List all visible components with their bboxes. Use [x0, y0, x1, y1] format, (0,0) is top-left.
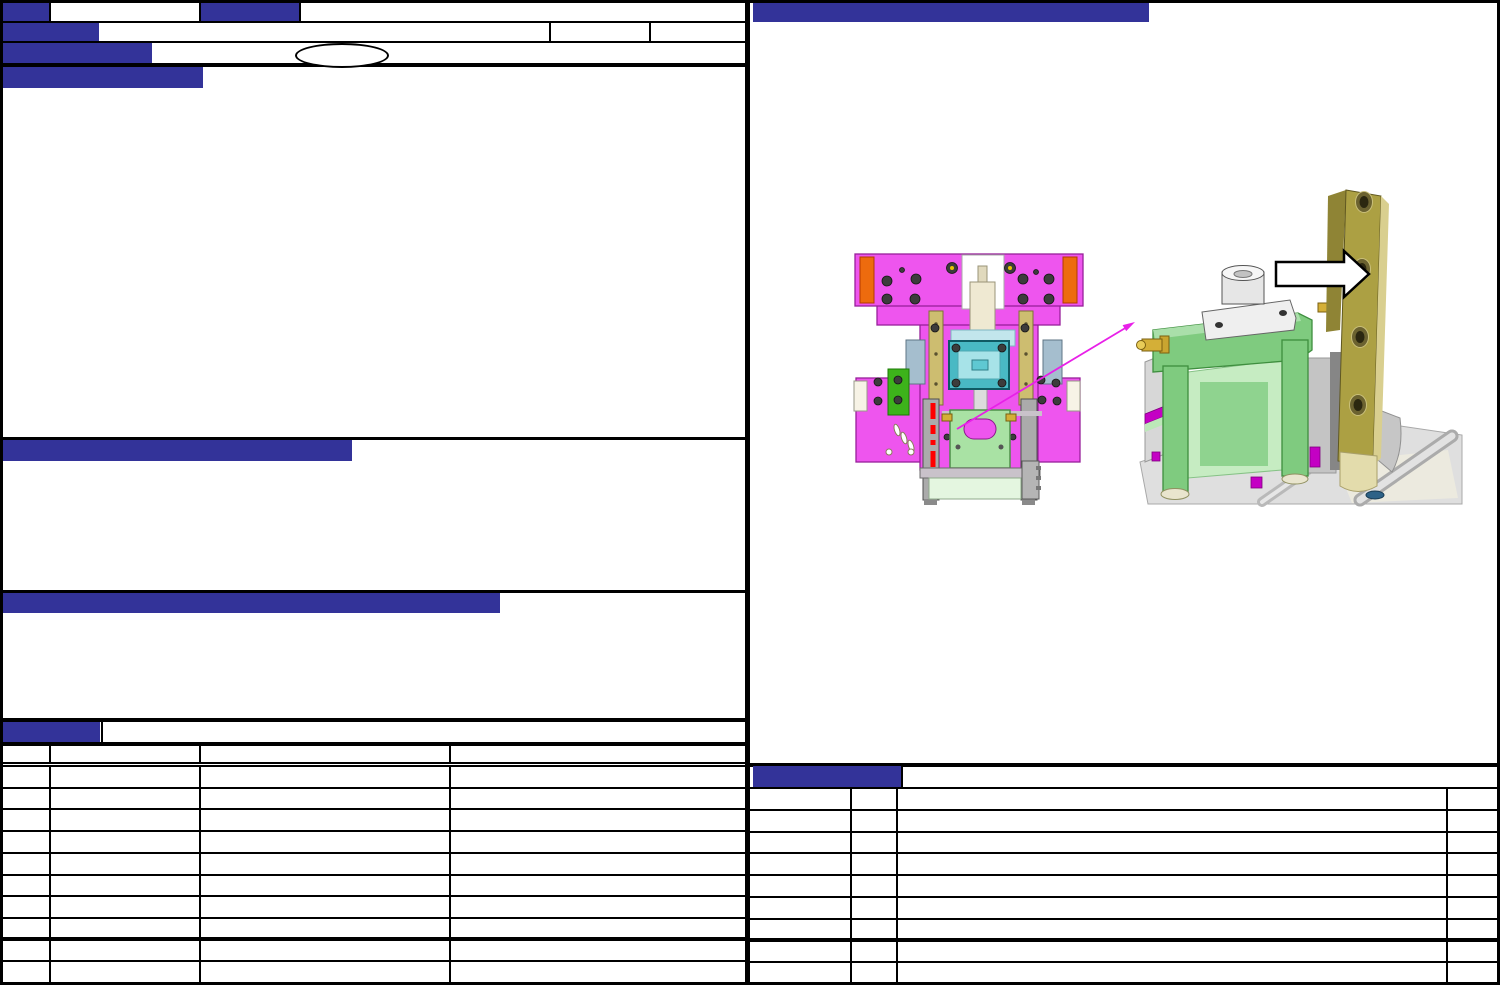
approval-stamp-oval	[295, 43, 389, 68]
mold-assembly-front-view	[854, 254, 1083, 505]
table-cell[interactable]	[750, 898, 850, 918]
table-cell[interactable]	[3, 854, 49, 874]
table-cell[interactable]	[3, 767, 49, 787]
left-table-header-row	[3, 746, 745, 762]
column-header[interactable]	[750, 789, 850, 809]
clamp-web-panel	[1200, 382, 1268, 466]
table-cell[interactable]	[201, 767, 449, 787]
base-hole	[1366, 491, 1384, 499]
table-cell[interactable]	[1448, 920, 1497, 940]
rail-foot	[924, 499, 937, 505]
table-cell[interactable]	[1448, 833, 1497, 853]
table-cell[interactable]	[3, 810, 49, 830]
column-header[interactable]	[852, 789, 896, 809]
header-grid-line	[649, 23, 651, 41]
table-cell[interactable]	[898, 920, 1446, 940]
magenta-block	[1310, 447, 1320, 467]
table-cell[interactable]	[451, 810, 745, 830]
table-cell[interactable]	[451, 832, 745, 852]
wear-strip-left	[860, 257, 874, 303]
table-cell[interactable]	[451, 941, 745, 961]
right-table-thick-separator	[745, 938, 1500, 942]
leg-foot	[1282, 474, 1308, 484]
leg-foot	[1161, 489, 1189, 500]
table-cell[interactable]	[201, 810, 449, 830]
left-table-title-cell[interactable]	[104, 724, 742, 740]
table-cell[interactable]	[1448, 876, 1497, 896]
header-badge-doc-no	[201, 3, 299, 21]
table-cell[interactable]	[3, 919, 49, 939]
table-cell[interactable]	[51, 832, 199, 852]
table-cell[interactable]	[1448, 941, 1497, 961]
table-cell[interactable]	[852, 920, 896, 940]
table-cell[interactable]	[750, 920, 850, 940]
table-cell[interactable]	[3, 941, 49, 961]
magenta-block	[1152, 452, 1160, 461]
right-panel-title-bar	[753, 3, 1149, 22]
wear-strip-right	[1063, 257, 1077, 303]
section-1-content[interactable]	[3, 90, 743, 435]
header-badge-title	[3, 23, 99, 41]
side-tab-left	[854, 381, 867, 411]
left-table-top-border	[0, 718, 750, 722]
section-1-header-bar	[3, 67, 203, 88]
table-cell[interactable]	[1448, 854, 1497, 874]
table-cell[interactable]	[451, 876, 745, 896]
table-cell[interactable]	[451, 897, 745, 917]
side-pad-right	[1043, 340, 1062, 384]
table-cell[interactable]	[3, 832, 49, 852]
actuator-tip	[978, 266, 987, 284]
cad-figure-canvas	[845, 182, 1500, 512]
table-cell[interactable]	[3, 962, 49, 982]
column-header[interactable]	[3, 746, 49, 762]
table-cell[interactable]	[451, 962, 745, 982]
header-field-3[interactable]	[101, 25, 547, 39]
table-cell[interactable]	[451, 919, 745, 939]
table-cell[interactable]	[451, 789, 745, 809]
table-cell[interactable]	[852, 833, 896, 853]
section-3-content[interactable]	[3, 615, 743, 716]
section-3-header-bar	[3, 593, 500, 613]
magenta-block	[1251, 477, 1262, 488]
table-cell[interactable]	[898, 811, 1446, 831]
column-header[interactable]	[451, 746, 745, 762]
clamp-detail-view	[1137, 190, 1463, 504]
document-page	[0, 0, 1500, 985]
table-cell[interactable]	[201, 876, 449, 896]
left-table-thick-separator	[0, 937, 750, 941]
right-table-title-badge	[753, 766, 901, 787]
column-header[interactable]	[51, 746, 199, 762]
header-badge-logo	[3, 3, 49, 21]
table-cell[interactable]	[201, 789, 449, 809]
table-cell[interactable]	[51, 962, 199, 982]
table-cell[interactable]	[201, 854, 449, 874]
locating-bar-foot	[1340, 452, 1377, 492]
column-header[interactable]	[898, 789, 1446, 809]
table-cell[interactable]	[898, 898, 1446, 918]
header-field-5[interactable]	[653, 25, 743, 39]
section-2-content[interactable]	[3, 463, 743, 588]
table-cell[interactable]	[852, 854, 896, 874]
table-cell[interactable]	[51, 876, 199, 896]
table-cell[interactable]	[898, 833, 1446, 853]
table-cell[interactable]	[852, 876, 896, 896]
table-cell[interactable]	[51, 854, 199, 874]
table-cell[interactable]	[3, 876, 49, 896]
table-cell[interactable]	[201, 919, 449, 939]
left-table-title-badge	[3, 722, 100, 742]
left-table-title-divider	[101, 722, 103, 742]
table-cell[interactable]	[750, 854, 850, 874]
table-cell[interactable]	[750, 963, 850, 983]
header-field-4[interactable]	[553, 25, 647, 39]
table-cell[interactable]	[898, 854, 1446, 874]
header-field-1[interactable]	[51, 5, 197, 19]
table-cell[interactable]	[3, 897, 49, 917]
table-cell[interactable]	[201, 897, 449, 917]
header-badge-subtitle	[3, 43, 152, 63]
section-2-header-bar	[3, 440, 352, 461]
side-tab-right	[1067, 381, 1080, 411]
table-cell[interactable]	[51, 941, 199, 961]
table-cell[interactable]	[51, 810, 199, 830]
column-header[interactable]	[201, 746, 449, 762]
clamp-leg-right	[1282, 340, 1308, 476]
bottom-tray	[929, 478, 1021, 499]
table-cell[interactable]	[1448, 811, 1497, 831]
cavity-detail	[972, 360, 988, 370]
table-cell[interactable]	[451, 854, 745, 874]
table-cell[interactable]	[1448, 898, 1497, 918]
column-header[interactable]	[1448, 789, 1497, 809]
table-cell[interactable]	[852, 963, 896, 983]
right-table-title-cell[interactable]	[905, 768, 1493, 785]
table-cell[interactable]	[852, 941, 896, 961]
table-cell[interactable]	[1448, 963, 1497, 983]
table-cell[interactable]	[51, 919, 199, 939]
table-cell[interactable]	[750, 941, 850, 961]
table-cell[interactable]	[51, 897, 199, 917]
rail-foot	[1022, 499, 1035, 505]
table-cell[interactable]	[898, 941, 1446, 961]
gold-tab-left	[942, 414, 952, 421]
table-cell[interactable]	[451, 767, 745, 787]
table-cell[interactable]	[51, 789, 199, 809]
gold-pin	[1318, 303, 1327, 312]
table-cell[interactable]	[898, 876, 1446, 896]
left-table-body	[3, 767, 745, 982]
table-cell[interactable]	[3, 789, 49, 809]
table-cell[interactable]	[51, 767, 199, 787]
header-field-2[interactable]	[301, 5, 741, 19]
cylinder-bore	[1234, 271, 1252, 278]
table-cell[interactable]	[201, 962, 449, 982]
table-cell[interactable]	[852, 811, 896, 831]
table-cell[interactable]	[750, 876, 850, 896]
table-cell[interactable]	[898, 963, 1446, 983]
header-row1-divider	[3, 21, 745, 23]
table-cell[interactable]	[201, 832, 449, 852]
table-cell[interactable]	[852, 898, 896, 918]
right-table-title-divider	[901, 766, 903, 787]
gold-tab-right	[1006, 414, 1016, 421]
table-cell[interactable]	[201, 941, 449, 961]
table-cell[interactable]	[750, 833, 850, 853]
table-cell[interactable]	[750, 811, 850, 831]
right-table-body	[750, 789, 1497, 983]
clamp-leg-left	[1163, 366, 1188, 492]
header-grid-line	[549, 23, 551, 41]
